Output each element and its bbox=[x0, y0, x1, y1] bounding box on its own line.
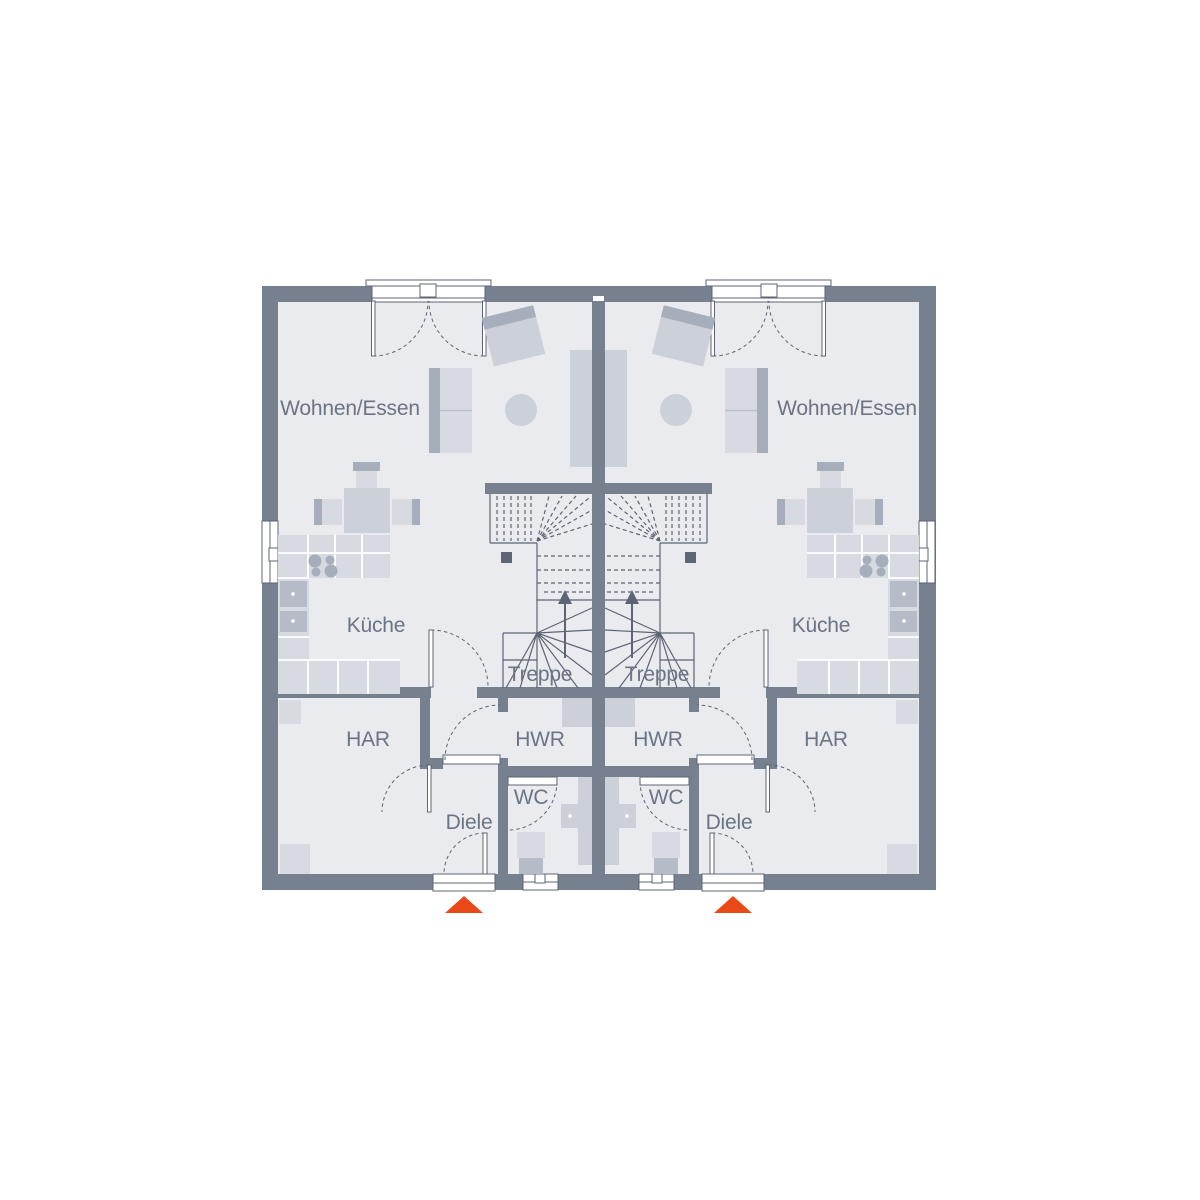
room-label-stairs-left: Treppe bbox=[508, 663, 573, 686]
room-label-kitchen-right: Küche bbox=[792, 614, 851, 637]
room-label-living-right: Wohnen/Essen bbox=[777, 397, 917, 420]
floor-plan-canvas: Wohnen/Essen Küche Treppe HAR HWR WC Die… bbox=[0, 0, 1200, 1200]
room-label-har-left: HAR bbox=[346, 728, 390, 751]
floor-plan-drawing: Wohnen/Essen Küche Treppe HAR HWR WC Die… bbox=[0, 0, 1200, 1200]
room-label-har-right: HAR bbox=[804, 728, 848, 751]
room-label-kitchen-left: Küche bbox=[347, 614, 406, 637]
room-label-wc-left: WC bbox=[514, 786, 549, 809]
room-label-hwr-right: HWR bbox=[633, 728, 683, 751]
room-label-stairs-right: Treppe bbox=[625, 663, 690, 686]
room-label-living-left: Wohnen/Essen bbox=[280, 397, 420, 420]
unit-left bbox=[262, 280, 592, 913]
room-label-wc-right: WC bbox=[649, 786, 684, 809]
party-wall bbox=[592, 302, 605, 874]
room-label-hall-left: Diele bbox=[446, 811, 493, 834]
party-wall-joint bbox=[593, 296, 604, 301]
unit-right bbox=[605, 280, 935, 913]
room-label-hall-right: Diele bbox=[706, 811, 753, 834]
room-label-hwr-left: HWR bbox=[515, 728, 565, 751]
